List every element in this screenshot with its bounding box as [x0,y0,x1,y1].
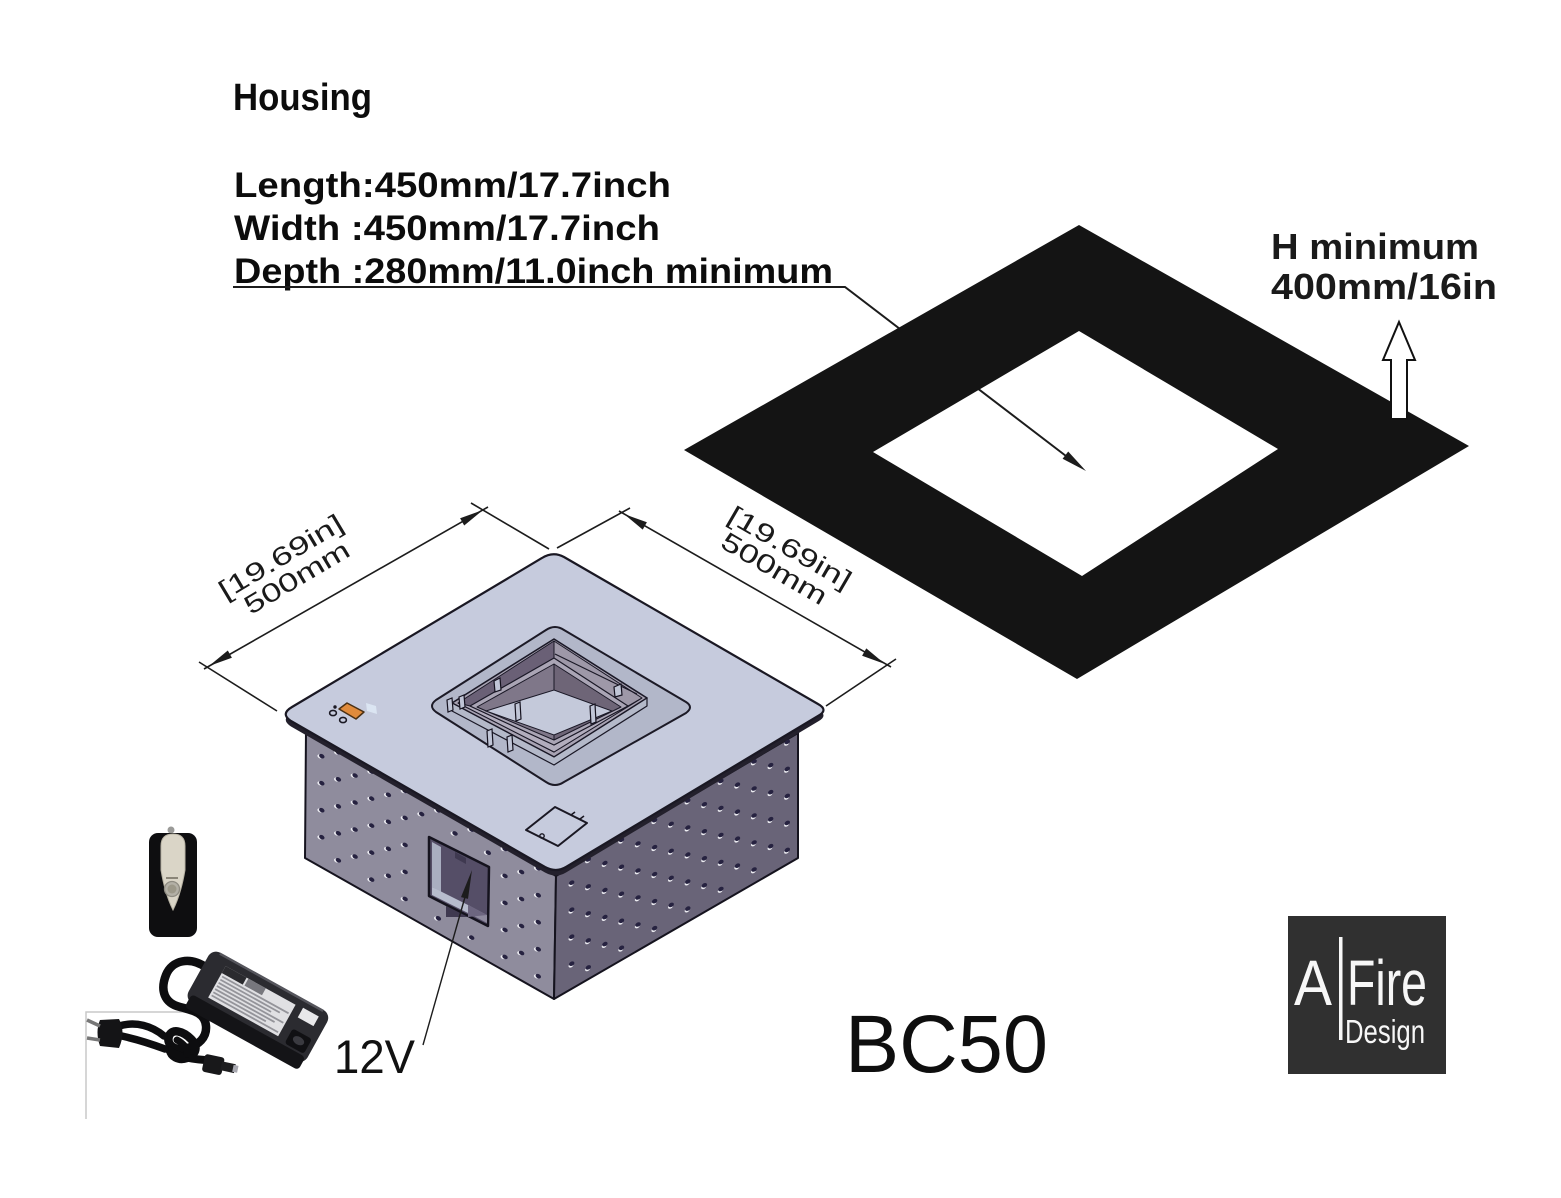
svg-text:H minimum: H minimum [1271,226,1479,267]
svg-text:Design: Design [1345,1013,1425,1050]
svg-text:Width :450mm/17.7inch: Width :450mm/17.7inch [234,209,660,248]
svg-text:Length:450mm/17.7inch: Length:450mm/17.7inch [234,166,671,205]
svg-text:BC50: BC50 [845,999,1048,1090]
svg-text:Depth :280mm/11.0inch minimum: Depth :280mm/11.0inch minimum [234,252,833,291]
svg-text:12V: 12V [334,1030,416,1083]
svg-text:Housing: Housing [233,77,372,119]
svg-text:Fire: Fire [1347,947,1427,1019]
svg-text:A: A [1294,947,1332,1019]
svg-text:400mm/16in: 400mm/16in [1271,266,1497,307]
